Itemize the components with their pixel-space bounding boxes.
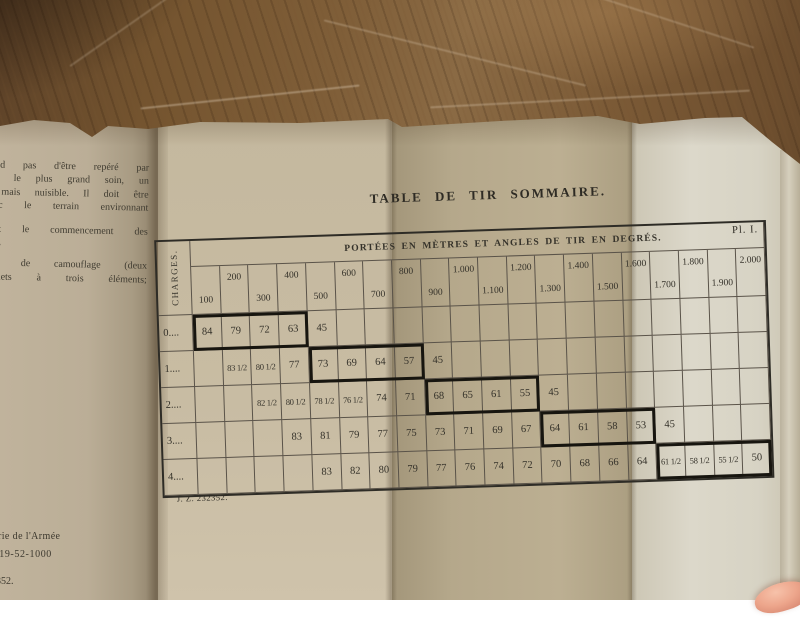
table-cell: 73 xyxy=(309,346,339,383)
table-cell xyxy=(684,406,714,443)
charges-label: CHARGES. xyxy=(168,250,180,307)
column-header: 1.600 xyxy=(621,252,651,301)
table-cell xyxy=(365,308,395,345)
table-cell: 81 xyxy=(311,418,341,455)
table-cell xyxy=(194,350,224,387)
table-cell xyxy=(508,304,538,341)
table-cell: 66 xyxy=(599,445,629,482)
row-label: 3.... xyxy=(162,423,197,460)
table-cell: 82 1/2 xyxy=(252,384,282,421)
table-cell: 69 xyxy=(483,412,513,449)
table-cell xyxy=(336,309,366,346)
table-cell: 69 xyxy=(337,345,367,382)
column-header: 2.000 xyxy=(736,248,766,297)
table-cell: 83 xyxy=(312,454,342,491)
table-cell: 50 xyxy=(742,440,772,477)
table-cell: 79 xyxy=(398,451,428,488)
table-cell: 70 xyxy=(542,447,572,484)
table-cell: 57 xyxy=(395,343,425,380)
table-cell xyxy=(452,341,482,378)
column-header: 600 xyxy=(335,261,365,310)
table-cell xyxy=(480,305,510,342)
table-cell: 68 xyxy=(570,446,600,483)
table-cell xyxy=(741,404,771,441)
table-cell xyxy=(451,305,481,342)
table-cell xyxy=(597,373,627,410)
table-cell: 55 1/2 xyxy=(714,441,744,478)
table-cell xyxy=(709,297,739,334)
table-cell: 74 xyxy=(484,448,514,485)
left-page-paragraph: ttend pas d'être repéré par vec le plus … xyxy=(0,158,149,287)
table-cell: 64 xyxy=(628,444,658,481)
table-cell: 65 xyxy=(453,377,483,414)
table-cell xyxy=(710,333,740,370)
column-header: 1.200 xyxy=(507,256,537,305)
charges-corner-header: CHARGES. xyxy=(156,241,192,316)
column-header: 400 xyxy=(277,263,307,312)
printer-imprint: 119-52-1000 xyxy=(0,549,52,560)
table-cell: 77 xyxy=(368,416,398,453)
table-cell xyxy=(537,303,567,340)
table-cell xyxy=(197,458,227,495)
table-cell: 45 xyxy=(539,375,569,412)
firing-table: CHARGES.PORTÉES EN MÈTRES ET ANGLES DE T… xyxy=(154,220,774,498)
row-label: 0.... xyxy=(159,315,194,352)
table-cell: 58 1/2 xyxy=(685,442,715,479)
table-cell: 68 xyxy=(425,378,455,415)
firing-table-plate: TABLE DE TIR SOMMAIRE. Pl. I. CHARGES.PO… xyxy=(151,174,780,526)
table-cell: 80 1/2 xyxy=(251,348,281,385)
table-cell xyxy=(509,340,539,377)
table-cell xyxy=(225,421,255,458)
column-header: 1.100 xyxy=(478,257,508,306)
table-cell: 45 xyxy=(307,310,337,347)
table-cell: 75 xyxy=(397,415,427,452)
table-cell: 63 xyxy=(279,311,309,348)
table-cell: 79 xyxy=(340,417,370,454)
print-reference: J. Z. 232352. xyxy=(177,492,228,504)
table-cell: 61 xyxy=(482,377,512,414)
table-cell xyxy=(738,296,768,333)
table-cell: 53 xyxy=(627,408,657,445)
table-cell: 64 xyxy=(366,344,396,381)
table-cell xyxy=(654,371,684,408)
table-cell xyxy=(594,301,624,338)
table-cell xyxy=(226,457,256,494)
table-cell: 80 1/2 xyxy=(281,383,311,420)
table-cell xyxy=(653,335,683,372)
table-cell xyxy=(683,370,713,407)
table-cell: 80 xyxy=(370,452,400,489)
page-right-edge xyxy=(780,150,800,600)
table-cell: 61 1/2 xyxy=(656,443,686,480)
column-header: 200 xyxy=(220,265,250,314)
table-cell xyxy=(254,420,284,457)
column-header: 1.400 xyxy=(564,254,594,303)
table-cell: 67 xyxy=(512,412,542,449)
table-cell xyxy=(566,302,596,339)
table-cell: 64 xyxy=(540,411,570,448)
column-header: 1.900 xyxy=(707,249,737,298)
table-cell: 45 xyxy=(423,342,453,379)
table-cell xyxy=(422,306,452,343)
table-cell: 61 xyxy=(569,410,599,447)
table-cell: 78 1/2 xyxy=(310,382,340,419)
table-cell xyxy=(568,374,598,411)
table-cell: 71 xyxy=(454,413,484,450)
photo-scene: ttend pas d'être repéré par vec le plus … xyxy=(0,0,800,600)
table-cell: 84 xyxy=(193,314,223,351)
column-header: 1.800 xyxy=(679,250,709,299)
table-cell: 71 xyxy=(396,379,426,416)
table-cell: 82 xyxy=(341,453,371,490)
column-header: 500 xyxy=(306,262,336,311)
table-cell xyxy=(481,341,511,378)
table-cell xyxy=(255,456,285,493)
table-cell xyxy=(595,337,625,374)
table-cell xyxy=(625,372,655,409)
table-cell: 73 xyxy=(426,414,456,451)
left-page-line: avec le terrain environnant xyxy=(0,199,148,216)
row-label: 2.... xyxy=(161,387,196,424)
column-header: 1.000 xyxy=(449,258,479,307)
column-header: 800 xyxy=(392,259,422,308)
table-cell: 79 xyxy=(221,313,251,350)
printer-imprint: 352. xyxy=(0,576,14,587)
table-cell xyxy=(393,307,423,344)
table-cell: 76 xyxy=(456,449,486,486)
row-label: 4.... xyxy=(163,459,198,496)
column-header: 100 xyxy=(191,266,221,315)
table-cell: 76 1/2 xyxy=(338,381,368,418)
column-header: 1.300 xyxy=(535,255,565,304)
column-header: 300 xyxy=(248,264,278,313)
table-cell: 83 xyxy=(282,419,312,456)
table-cell xyxy=(682,334,712,371)
table-cell xyxy=(711,369,741,406)
column-header: 900 xyxy=(421,258,451,307)
table-cell: 45 xyxy=(655,407,685,444)
row-label: 1.... xyxy=(160,351,195,388)
table-cell: 72 xyxy=(250,312,280,349)
table-cell: 72 xyxy=(513,448,543,485)
table-cell: 77 xyxy=(427,450,457,487)
table-cell xyxy=(740,368,770,405)
column-header: 1.500 xyxy=(593,253,623,302)
table-cell xyxy=(680,298,710,335)
printer-imprint: airie de l'Armée xyxy=(0,531,60,542)
table-cell xyxy=(567,338,597,375)
table-cell: 74 xyxy=(367,380,397,417)
table-cell: 77 xyxy=(280,347,310,384)
table-cell xyxy=(284,455,314,492)
table-cell: 55 xyxy=(511,376,541,413)
column-header: 1.700 xyxy=(650,251,680,300)
table-cell xyxy=(739,332,769,369)
table-cell: 58 xyxy=(598,409,628,446)
table-cell xyxy=(652,299,682,336)
table-cell xyxy=(624,336,654,373)
table-cell xyxy=(224,385,254,422)
table-cell xyxy=(623,300,653,337)
table-cell xyxy=(195,386,225,423)
table-cell xyxy=(538,339,568,376)
table-cell xyxy=(713,405,743,442)
table-cell xyxy=(196,422,226,459)
column-header: 700 xyxy=(363,260,393,309)
table-cell: 83 1/2 xyxy=(223,349,253,386)
